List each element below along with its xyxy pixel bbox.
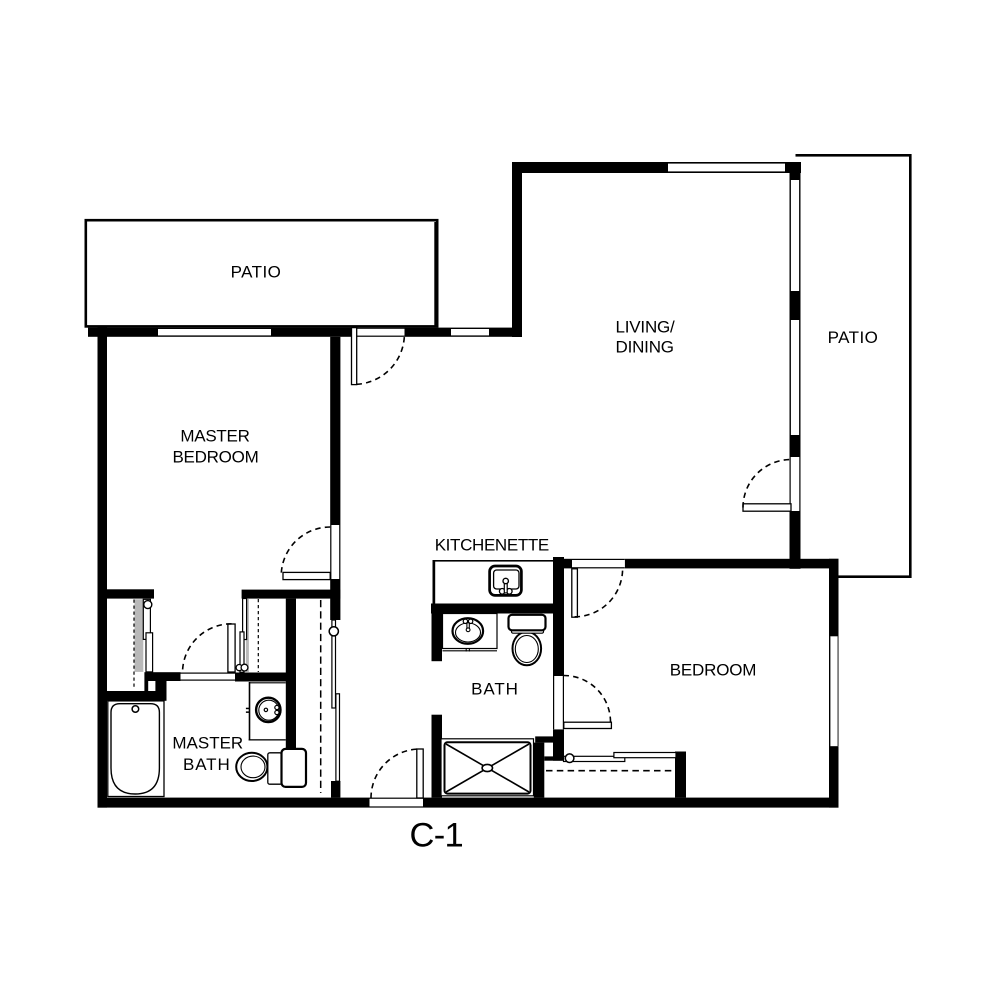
svg-text:LIVING/: LIVING/	[616, 318, 676, 337]
svg-text:BATH: BATH	[183, 755, 231, 774]
svg-text:PATIO: PATIO	[231, 263, 282, 282]
svg-text:MASTER: MASTER	[172, 734, 243, 753]
svg-text:KITCHENETTE: KITCHENETTE	[435, 536, 549, 555]
svg-text:BEDROOM: BEDROOM	[670, 661, 756, 680]
svg-text:BEDROOM: BEDROOM	[172, 448, 258, 467]
svg-text:C-1: C-1	[410, 816, 464, 854]
svg-text:BATH: BATH	[471, 680, 519, 699]
svg-text:DINING: DINING	[616, 338, 674, 357]
svg-text:MASTER: MASTER	[180, 427, 249, 446]
svg-text:PATIO: PATIO	[828, 328, 879, 347]
